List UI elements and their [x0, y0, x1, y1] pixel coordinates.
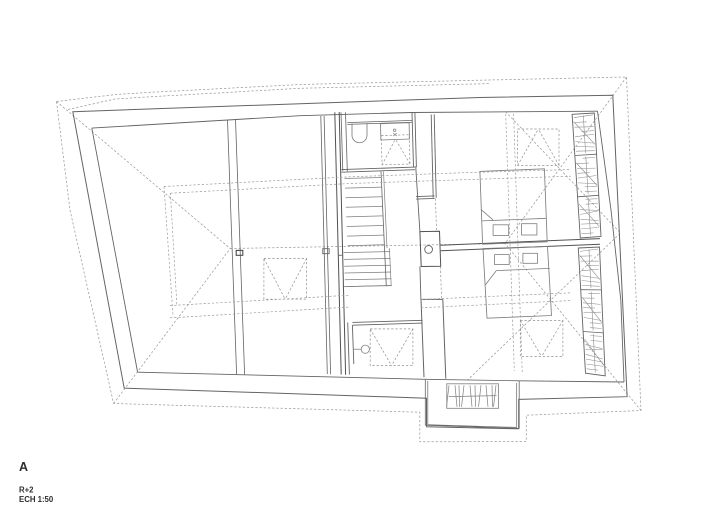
svg-text:ECH 1:50: ECH 1:50 [19, 495, 54, 504]
svg-text:A: A [19, 460, 28, 474]
svg-text:R+2: R+2 [19, 486, 34, 495]
